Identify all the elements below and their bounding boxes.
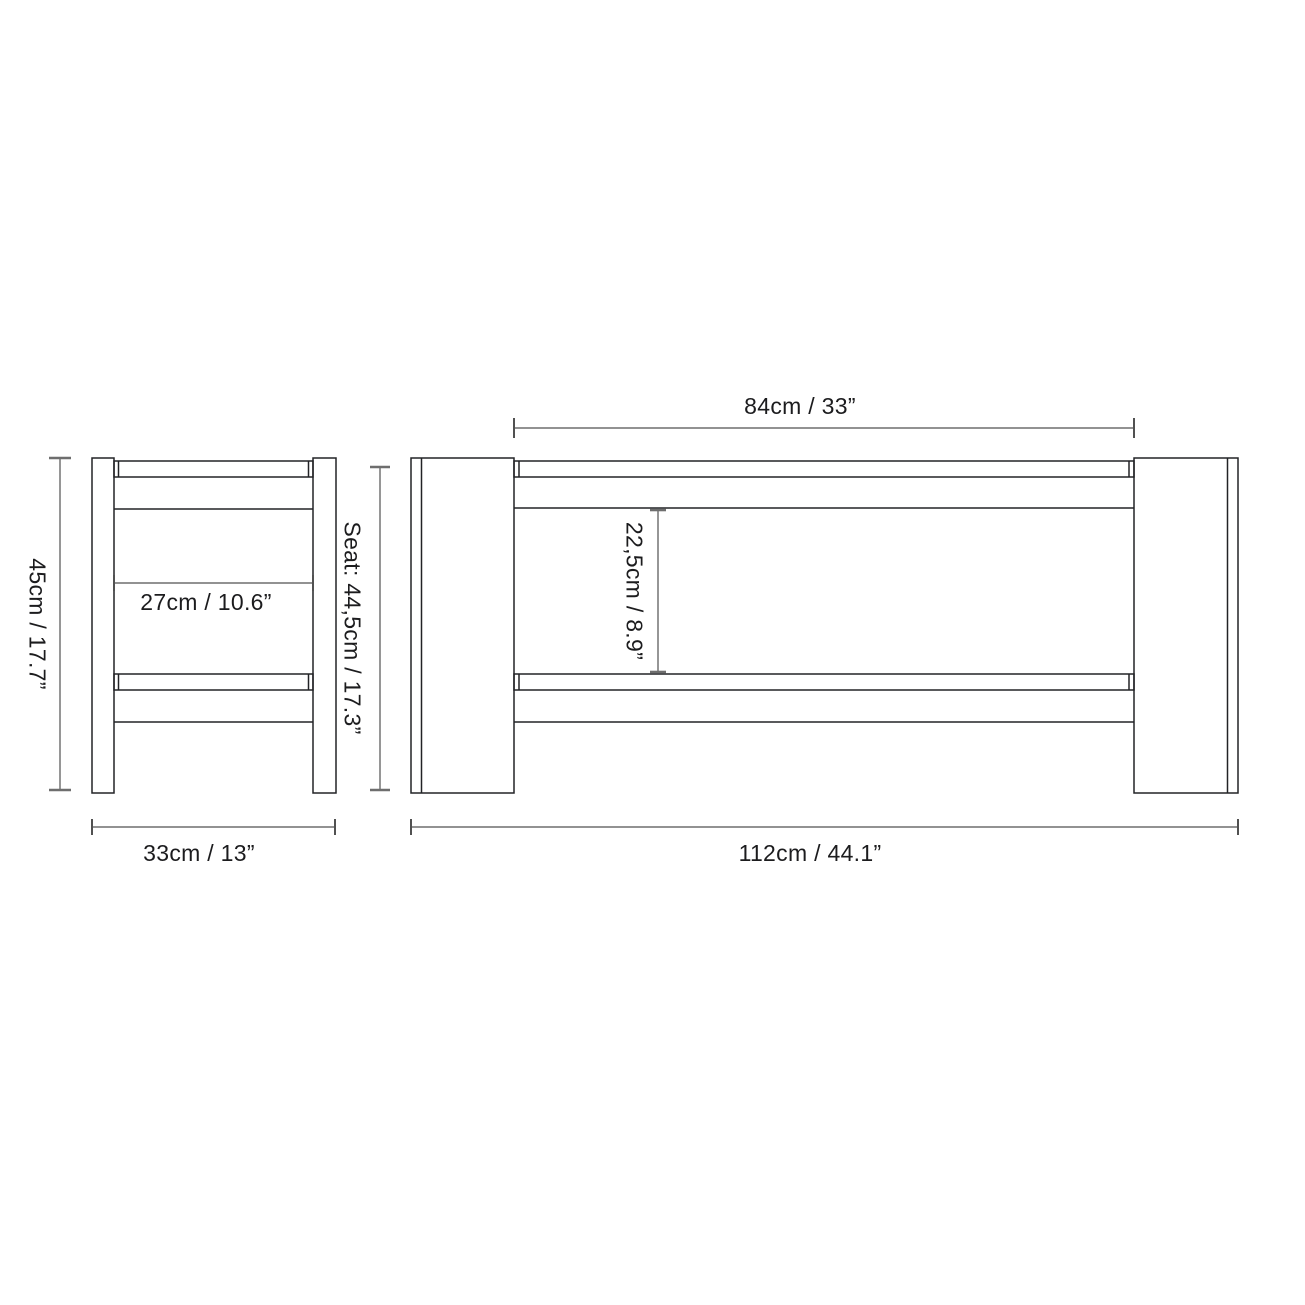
side-seat-board (114, 461, 313, 477)
side-stretcher-board (114, 674, 313, 690)
dim-inner-span-front: 84cm / 33” (514, 393, 1134, 438)
dim-overall-length: 112cm / 44.1” (411, 819, 1238, 866)
dim-overall-height: 45cm / 17.7” (24, 458, 71, 790)
front-left-leg-panel (411, 458, 514, 793)
drawing-canvas: 45cm / 17.7” 27cm / 10.6” 33cm / 13” Sea… (0, 0, 1305, 1305)
front-seat-board (514, 461, 1134, 477)
dim-overall-length-label: 112cm / 44.1” (739, 840, 882, 866)
front-right-leg-panel (1134, 458, 1238, 793)
dim-rail-gap: 22,5cm / 8.9” (621, 510, 666, 672)
dim-seat-height-label: Seat: 44,5cm / 17.3” (339, 521, 365, 734)
side-left-leg (92, 458, 114, 793)
dim-seat-height: Seat: 44,5cm / 17.3” (339, 467, 390, 790)
bench-front-view (411, 458, 1238, 793)
dim-inner-span-front-label: 84cm / 33” (744, 393, 856, 419)
dim-inner-span-side-label: 27cm / 10.6” (140, 589, 271, 615)
dim-rail-gap-label: 22,5cm / 8.9” (621, 522, 647, 660)
side-right-leg (313, 458, 336, 793)
bench-dimension-diagram: 45cm / 17.7” 27cm / 10.6” 33cm / 13” Sea… (0, 0, 1305, 1305)
front-stretcher-board (514, 674, 1134, 690)
dim-inner-span-side: 27cm / 10.6” (114, 575, 313, 615)
dim-overall-depth: 33cm / 13” (92, 819, 335, 866)
dim-overall-depth-label: 33cm / 13” (143, 840, 255, 866)
dim-overall-height-label: 45cm / 17.7” (24, 558, 50, 689)
bench-side-view (92, 458, 336, 793)
